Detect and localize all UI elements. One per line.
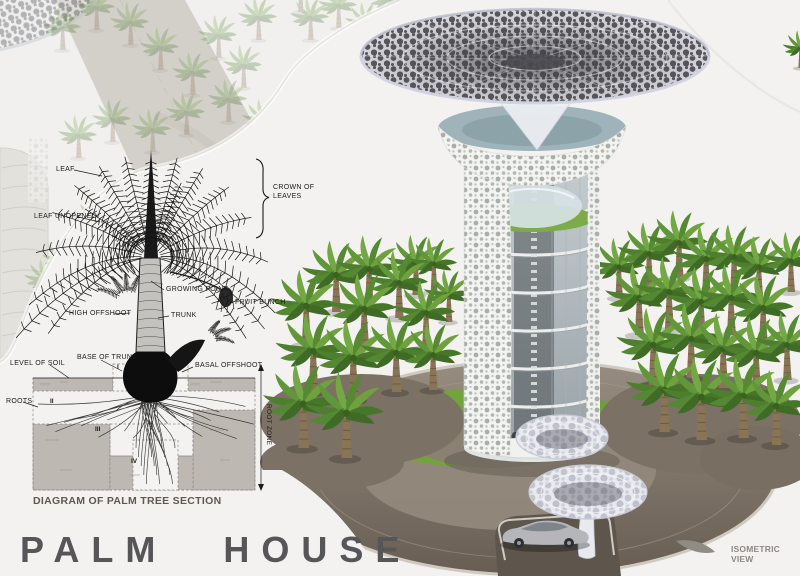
perforated-shell (464, 161, 511, 456)
label-basal-offshoot: BASAL OFFSHOOT (195, 362, 262, 369)
label-level-of-soil: LEVEL OF SOIL (10, 360, 65, 367)
label-trunk: TRUNK (171, 312, 197, 319)
label-crown-of-leaves: CROWN OF LEAVES (273, 183, 317, 202)
label-leaf-unopened: LEAF UNOPENED (34, 213, 97, 220)
label-base-of-trunk: BASE OF TRUNK (77, 354, 137, 361)
zone-numeral-1: I (117, 364, 119, 371)
diagram-caption: DIAGRAM OF PALM TREE SECTION (33, 495, 221, 507)
zone-numeral-3: III (95, 426, 100, 433)
presentation-canvas (0, 0, 800, 576)
view-label: ISOMETRIC VIEW (731, 544, 800, 564)
zone-numeral-4: IV (131, 458, 137, 465)
zone-numeral-2: II (50, 398, 54, 405)
page-title: PALM HOUSE (20, 529, 411, 571)
presentation-board: LEAF LEAF UNOPENED CROWN OF LEAVES GROWI… (0, 0, 800, 576)
label-fruit-bunch: FRUIT BUNCH (235, 299, 286, 306)
label-leaf: LEAF (56, 166, 75, 173)
label-high-offshoot: HIGH OFFSHOOT (69, 310, 131, 317)
canopy-dish (361, 9, 709, 103)
label-growing-point: GROWING POINT (166, 286, 228, 293)
label-roots: ROOTS (6, 398, 32, 405)
label-root-zone: ROOT ZONE (265, 404, 272, 445)
